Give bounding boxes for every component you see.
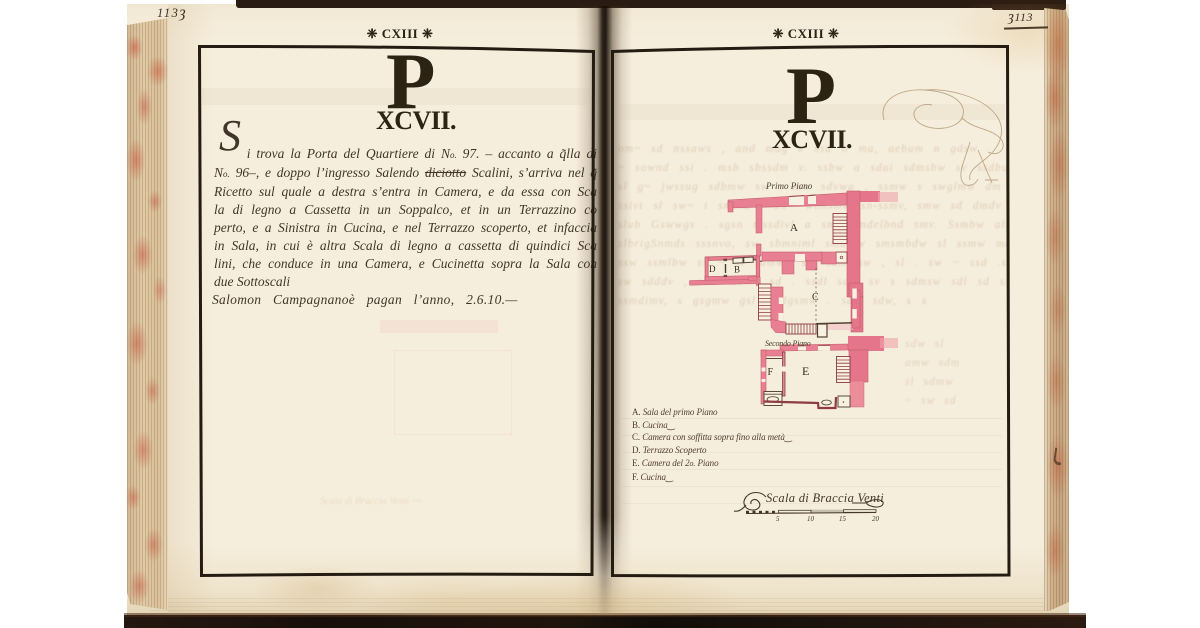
svg-text:A: A <box>790 222 798 234</box>
svg-text:E: E <box>802 364 809 378</box>
svg-text:F: F <box>768 367 774 378</box>
svg-text:C: C <box>812 292 819 303</box>
svg-text:D: D <box>709 264 716 274</box>
svg-text:B: B <box>734 265 740 275</box>
